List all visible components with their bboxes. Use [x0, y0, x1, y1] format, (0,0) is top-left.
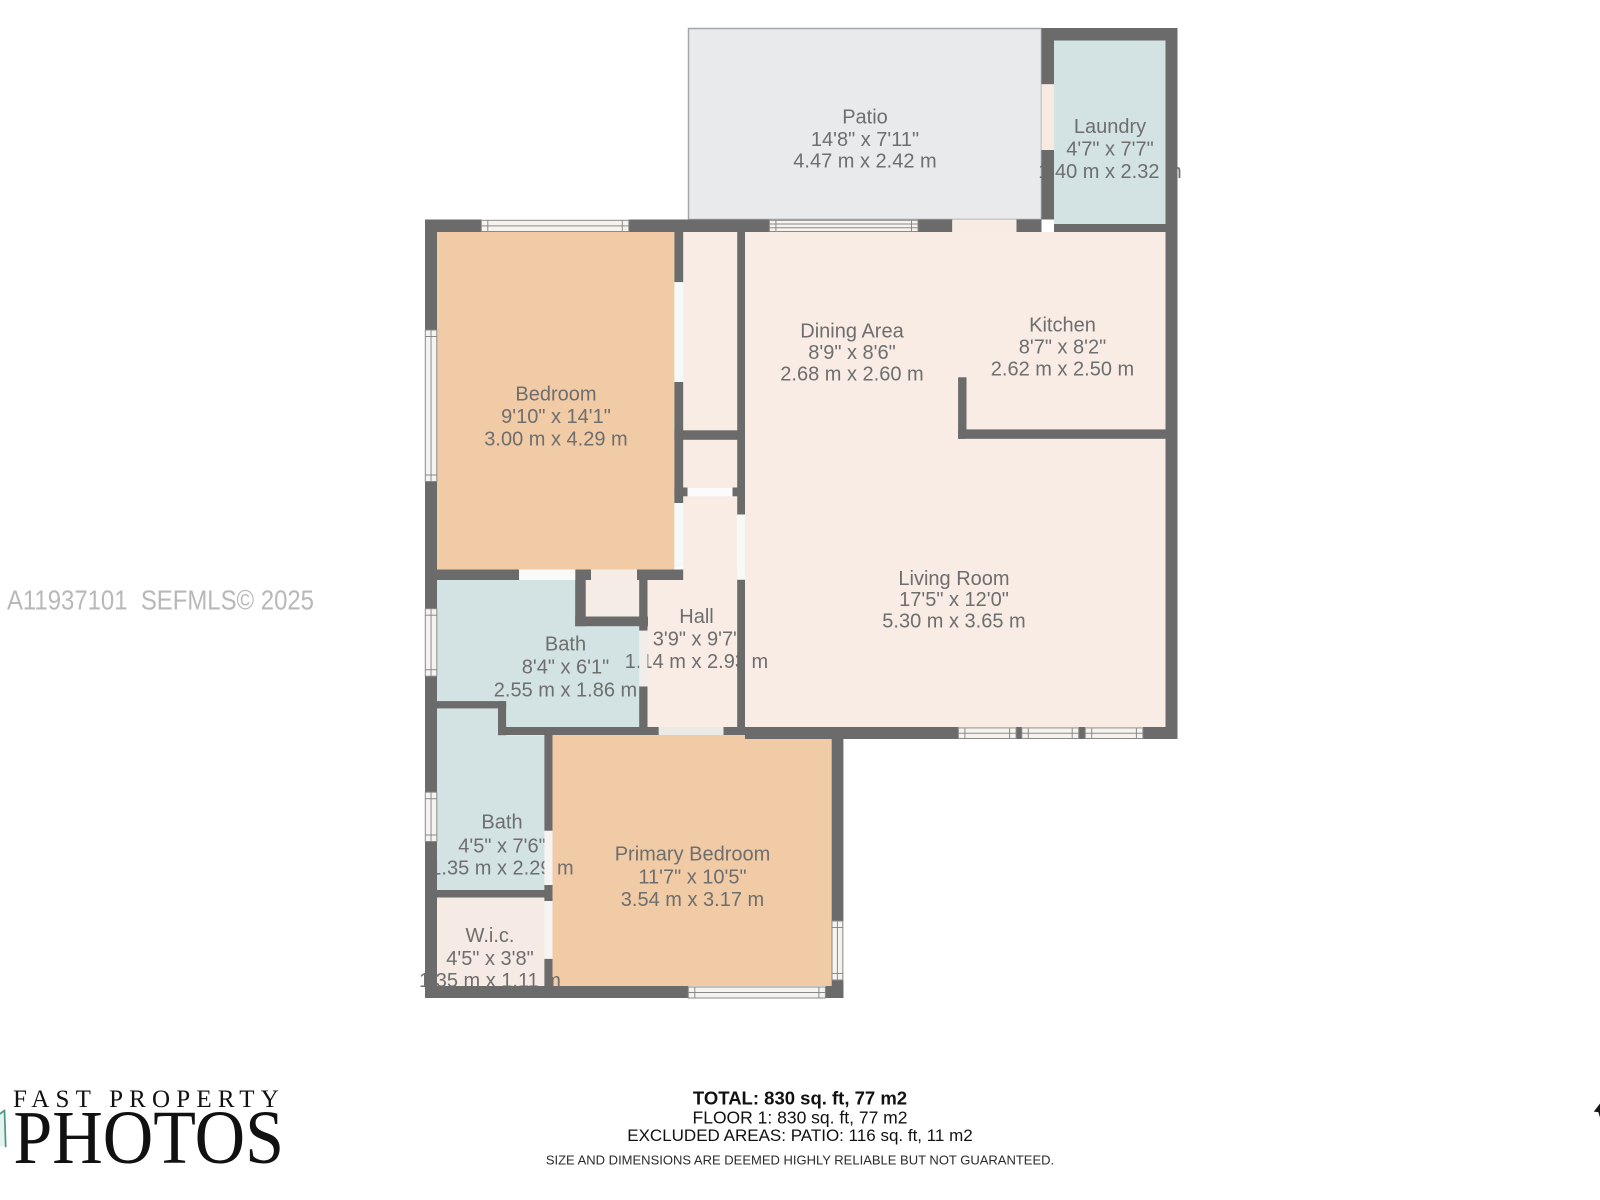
svg-text:PHOTOS: PHOTOS [13, 1095, 284, 1179]
svg-text:Laundry: Laundry [1074, 116, 1146, 138]
svg-text:11'7" x 10'5": 11'7" x 10'5" [638, 867, 746, 889]
svg-text:EXCLUDED AREAS: PATIO: 116 sq.: EXCLUDED AREAS: PATIO: 116 sq. ft, 11 m2 [627, 1126, 972, 1145]
svg-text:SIZE AND DIMENSIONS ARE DEEMED: SIZE AND DIMENSIONS ARE DEEMED HIGHLY RE… [546, 1153, 1054, 1168]
svg-text:Bath: Bath [481, 812, 522, 834]
svg-text:FLOOR 1: 830 sq. ft, 77 m2: FLOOR 1: 830 sq. ft, 77 m2 [693, 1108, 908, 1128]
svg-text:14'8" x 7'11": 14'8" x 7'11" [811, 129, 919, 151]
svg-text:A11937101 SEFMLS© 2025: A11937101 SEFMLS© 2025 [7, 586, 314, 616]
svg-text:W.i.c.: W.i.c. [466, 925, 515, 947]
svg-text:Hall: Hall [679, 606, 713, 628]
svg-text:2.55 m x 1.86 m: 2.55 m x 1.86 m [494, 680, 637, 702]
svg-text:4'7" x 7'7": 4'7" x 7'7" [1066, 139, 1153, 161]
svg-text:Dining Area: Dining Area [800, 321, 904, 343]
svg-text:Primary Bedroom: Primary Bedroom [615, 844, 771, 866]
svg-text:Bath: Bath [545, 634, 586, 656]
svg-text:8'7" x 8'2": 8'7" x 8'2" [1019, 337, 1106, 359]
svg-text:3.54 m x 3.17 m: 3.54 m x 3.17 m [621, 889, 764, 911]
svg-text:17'5" x 12'0": 17'5" x 12'0" [899, 589, 1009, 611]
svg-text:5.30 m x 3.65 m: 5.30 m x 3.65 m [882, 611, 1025, 633]
svg-text:Living Room: Living Room [898, 568, 1009, 590]
svg-text:8'4" x 6'1": 8'4" x 6'1" [522, 657, 609, 679]
svg-text:3'9" x 9'7": 3'9" x 9'7" [653, 629, 740, 651]
svg-text:4'5" x 7'6": 4'5" x 7'6" [458, 836, 545, 858]
svg-text:3.00 m x 4.29 m: 3.00 m x 4.29 m [484, 429, 627, 451]
svg-text:2.62 m x 2.50 m: 2.62 m x 2.50 m [991, 359, 1134, 381]
svg-text:4'5" x 3'8": 4'5" x 3'8" [446, 948, 533, 970]
svg-text:9'10" x 14'1": 9'10" x 14'1" [501, 406, 611, 428]
svg-text:8'9" x 8'6": 8'9" x 8'6" [808, 342, 895, 364]
svg-text:1.40 m x 2.32 m: 1.40 m x 2.32 m [1038, 161, 1181, 183]
svg-text:Patio: Patio [842, 107, 888, 129]
svg-text:TOTAL: 830 sq. ft, 77 m2: TOTAL: 830 sq. ft, 77 m2 [693, 1088, 907, 1109]
svg-text:Kitchen: Kitchen [1029, 315, 1096, 337]
svg-text:Bedroom: Bedroom [515, 384, 596, 406]
svg-text:2.68 m x 2.60 m: 2.68 m x 2.60 m [780, 364, 923, 386]
svg-text:4.47 m x 2.42 m: 4.47 m x 2.42 m [793, 151, 936, 173]
